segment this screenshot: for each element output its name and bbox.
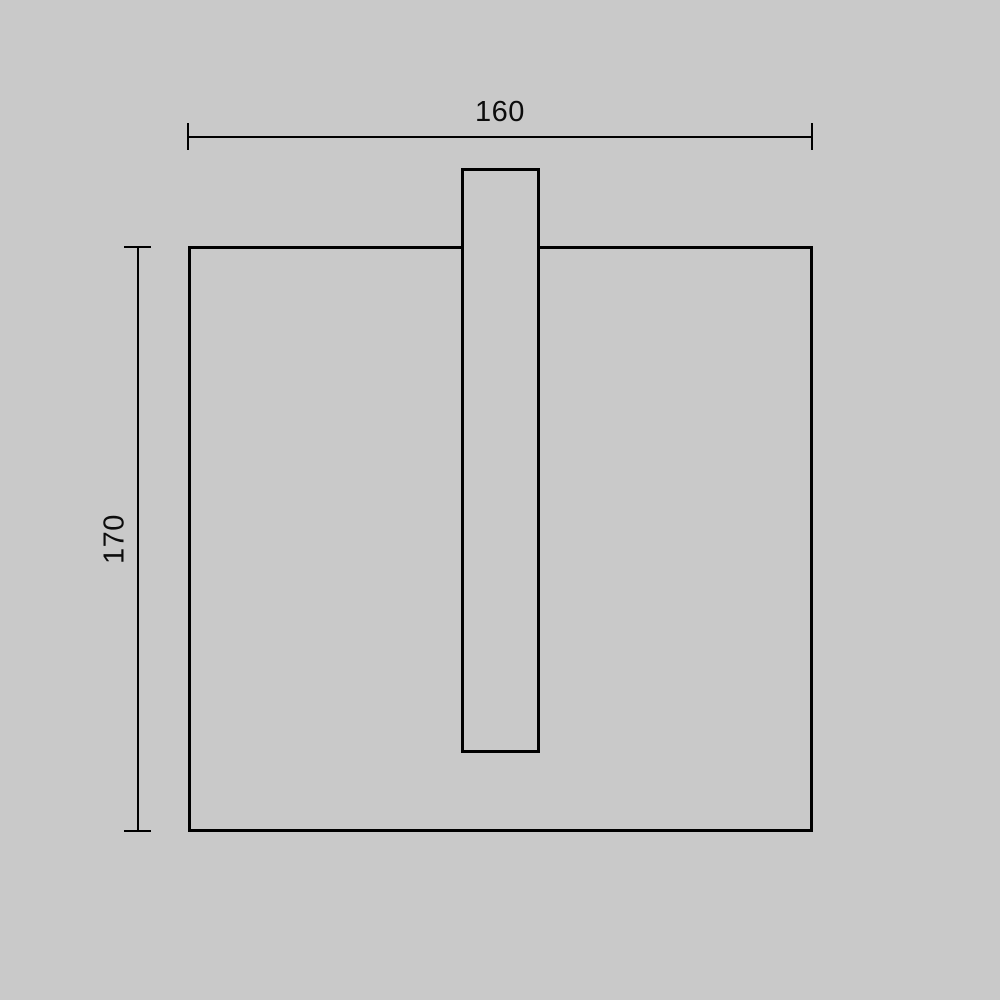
height-dimension-tick-bottom bbox=[124, 830, 151, 832]
height-dimension-line bbox=[137, 247, 139, 831]
width-dimension-label: 160 bbox=[188, 98, 812, 127]
width-dimension-tick-right bbox=[811, 123, 813, 150]
height-dimension-label: 170 bbox=[101, 514, 130, 564]
width-dimension-tick-left bbox=[187, 123, 189, 150]
height-dimension-tick-top bbox=[124, 246, 151, 248]
width-dimension-line bbox=[188, 136, 812, 138]
slot-tab-outline bbox=[461, 168, 540, 753]
